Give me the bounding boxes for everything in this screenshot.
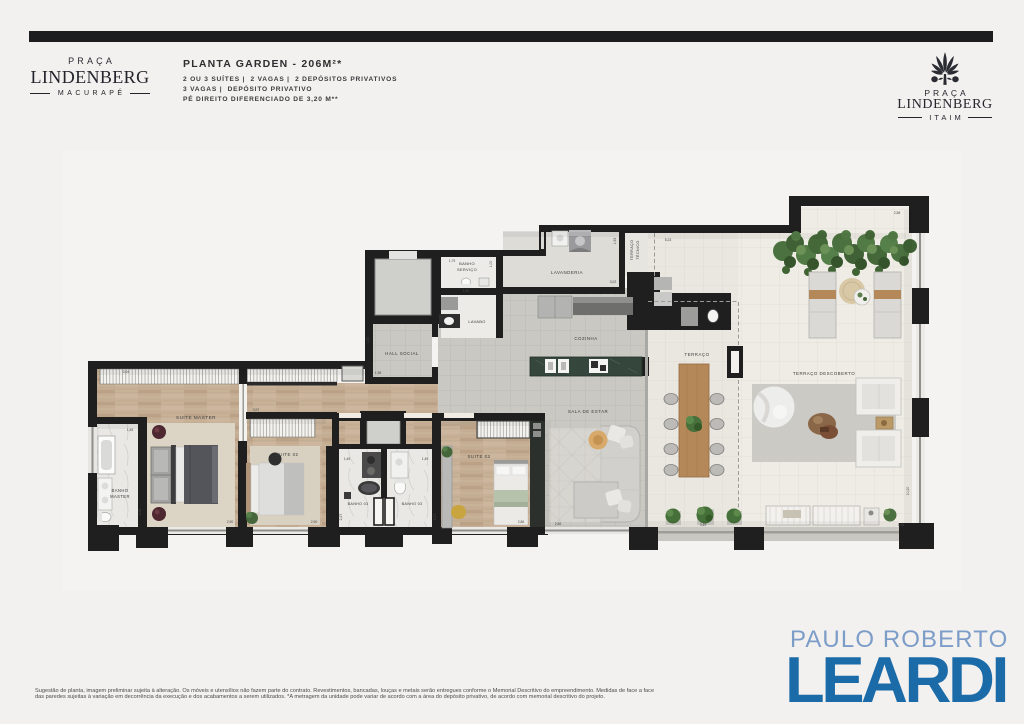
svg-text:2,27: 2,27 <box>433 514 437 521</box>
svg-text:1,49: 1,49 <box>422 457 429 461</box>
svg-text:1,50: 1,50 <box>366 337 370 344</box>
svg-text:3,97: 3,97 <box>253 408 260 412</box>
svg-text:3,49: 3,49 <box>700 523 707 527</box>
svg-text:2,86: 2,86 <box>555 522 562 526</box>
svg-text:1,45: 1,45 <box>127 428 134 432</box>
svg-text:SUITE 03: SUITE 03 <box>467 454 490 459</box>
svg-text:10,20: 10,20 <box>906 487 910 496</box>
svg-text:2,27: 2,27 <box>339 514 343 521</box>
svg-text:2,86: 2,86 <box>518 520 525 524</box>
svg-text:TERRAÇO: TERRAÇO <box>630 240 634 261</box>
svg-text:1,98: 1,98 <box>375 371 382 375</box>
svg-text:SUITE 02: SUITE 02 <box>275 452 298 457</box>
svg-text:1,93: 1,93 <box>613 238 617 245</box>
svg-text:LAVANDERIA: LAVANDERIA <box>551 270 583 275</box>
svg-text:TERRAÇO: TERRAÇO <box>685 352 710 357</box>
svg-text:2,90: 2,90 <box>311 520 318 524</box>
svg-text:LAVABO: LAVABO <box>468 319 485 324</box>
svg-text:3,94: 3,94 <box>123 370 130 374</box>
svg-text:BANHO 03: BANHO 03 <box>348 502 369 506</box>
svg-text:5,23: 5,23 <box>665 238 672 242</box>
svg-text:1,04: 1,04 <box>898 523 905 527</box>
svg-text:BANHO: BANHO <box>112 488 129 493</box>
svg-text:SALA DE ESTAR: SALA DE ESTAR <box>568 409 608 414</box>
svg-text:2,58: 2,58 <box>894 211 901 215</box>
svg-text:COZINHA: COZINHA <box>574 336 597 341</box>
svg-text:BANHO: BANHO <box>459 261 475 266</box>
svg-text:1,82: 1,82 <box>463 289 470 293</box>
svg-text:TÉCNICO: TÉCNICO <box>635 240 640 259</box>
svg-text:1,00: 1,00 <box>489 261 493 268</box>
svg-text:MASTER: MASTER <box>110 494 130 499</box>
svg-text:TERRAÇO DESCOBERTO: TERRAÇO DESCOBERTO <box>793 371 855 376</box>
svg-text:3,02: 3,02 <box>610 280 617 284</box>
svg-text:2,23: 2,23 <box>138 509 142 516</box>
svg-text:2,90: 2,90 <box>227 520 234 524</box>
svg-text:HALL SOCIAL: HALL SOCIAL <box>385 351 419 356</box>
svg-text:1,45: 1,45 <box>344 457 351 461</box>
svg-text:1,79: 1,79 <box>449 259 456 263</box>
svg-text:SUITE MASTER: SUITE MASTER <box>176 415 216 420</box>
svg-text:BANHO 03: BANHO 03 <box>402 502 423 506</box>
svg-text:SERVIÇO: SERVIÇO <box>457 267 477 272</box>
